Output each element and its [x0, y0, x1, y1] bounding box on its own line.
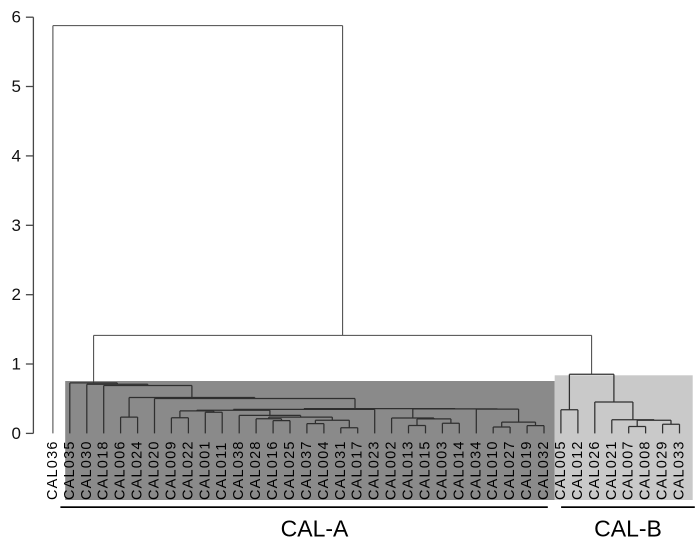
- svg-text:2: 2: [12, 285, 21, 304]
- svg-text:CAL024: CAL024: [130, 440, 146, 500]
- svg-text:0: 0: [12, 424, 21, 443]
- svg-text:CAL033: CAL033: [672, 440, 688, 500]
- svg-text:6: 6: [12, 8, 21, 27]
- svg-text:CAL011: CAL011: [214, 441, 230, 500]
- svg-text:5: 5: [12, 77, 21, 96]
- svg-text:CAL012: CAL012: [570, 440, 586, 500]
- svg-text:CAL029: CAL029: [655, 440, 671, 500]
- svg-text:4: 4: [12, 146, 21, 165]
- svg-text:CAL030: CAL030: [79, 440, 95, 500]
- svg-text:CAL013: CAL013: [401, 440, 417, 500]
- svg-text:CAL001: CAL001: [197, 440, 213, 500]
- svg-text:CAL004: CAL004: [316, 440, 332, 500]
- svg-text:CAL020: CAL020: [147, 440, 163, 500]
- svg-text:CAL035: CAL035: [62, 440, 78, 500]
- svg-text:CAL003: CAL003: [434, 440, 450, 500]
- svg-text:CAL010: CAL010: [485, 440, 501, 500]
- svg-text:CAL002: CAL002: [384, 440, 400, 500]
- svg-text:CAL025: CAL025: [282, 440, 298, 500]
- svg-text:CAL034: CAL034: [468, 440, 484, 500]
- svg-text:CAL018: CAL018: [96, 440, 112, 500]
- svg-text:CAL015: CAL015: [418, 440, 434, 500]
- svg-text:CAL014: CAL014: [451, 440, 467, 500]
- svg-text:CAL027: CAL027: [502, 440, 518, 500]
- svg-text:CAL026: CAL026: [587, 440, 603, 500]
- svg-text:CAL036: CAL036: [45, 440, 61, 500]
- svg-text:CAL008: CAL008: [638, 440, 654, 500]
- svg-text:CAL006: CAL006: [113, 440, 129, 500]
- svg-text:CAL022: CAL022: [180, 440, 196, 500]
- svg-text:CAL032: CAL032: [536, 440, 552, 500]
- svg-text:CAL038: CAL038: [231, 440, 247, 500]
- svg-text:1: 1: [12, 355, 21, 374]
- svg-text:CAL019: CAL019: [519, 440, 535, 500]
- svg-text:CAL009: CAL009: [163, 440, 179, 500]
- svg-text:CAL023: CAL023: [367, 440, 383, 500]
- svg-text:CAL-B: CAL-B: [594, 516, 662, 542]
- svg-text:CAL031: CAL031: [333, 440, 349, 500]
- svg-text:3: 3: [12, 216, 21, 235]
- svg-text:CAL-A: CAL-A: [281, 516, 349, 542]
- svg-text:CAL028: CAL028: [248, 440, 264, 500]
- svg-text:CAL007: CAL007: [621, 440, 637, 500]
- svg-text:CAL037: CAL037: [299, 440, 315, 500]
- svg-text:CAL016: CAL016: [265, 440, 281, 500]
- svg-text:CAL005: CAL005: [553, 440, 569, 500]
- svg-text:CAL021: CAL021: [604, 440, 620, 500]
- svg-text:CAL017: CAL017: [350, 440, 366, 500]
